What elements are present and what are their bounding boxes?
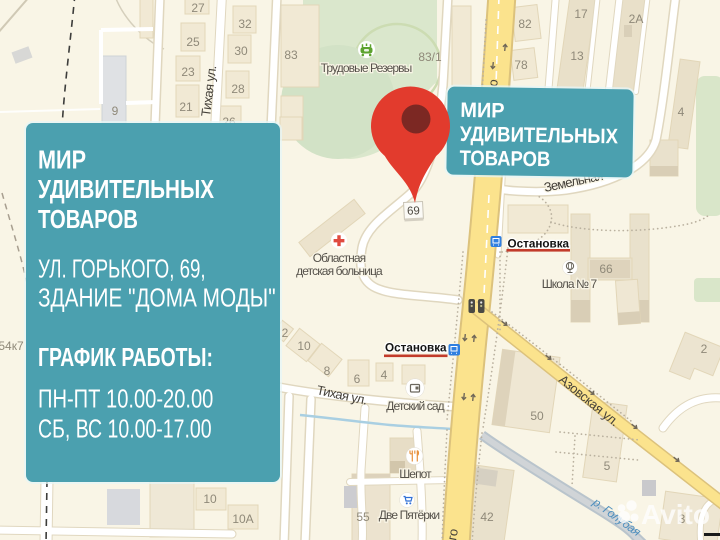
svg-text:УДИВИТЕЛЬНЫХ: УДИВИТЕЛЬНЫХ (38, 175, 214, 204)
svg-text:ТОВАРОВ: ТОВАРОВ (459, 147, 550, 172)
svg-text:УДИВИТЕЛЬНЫХ: УДИВИТЕЛЬНЫХ (460, 123, 619, 149)
svg-text:УЛ. ГОРЬКОГО, 69,: УЛ. ГОРЬКОГО, 69, (38, 253, 206, 283)
svg-text:ЗДАНИЕ "ДОМА МОДЫ": ЗДАНИЕ "ДОМА МОДЫ" (38, 283, 276, 312)
svg-text:СБ, ВС 10.00-17.00: СБ, ВС 10.00-17.00 (38, 414, 212, 443)
svg-text:Avito: Avito (641, 499, 710, 530)
svg-text:МИР: МИР (460, 98, 505, 122)
svg-text:МИР: МИР (38, 146, 86, 175)
svg-text:ГРАФИК РАБОТЫ:: ГРАФИК РАБОТЫ: (38, 342, 213, 371)
svg-text:ТОВАРОВ: ТОВАРОВ (38, 205, 138, 234)
svg-text:ПН-ПТ 10.00-20.00: ПН-ПТ 10.00-20.00 (38, 384, 213, 413)
